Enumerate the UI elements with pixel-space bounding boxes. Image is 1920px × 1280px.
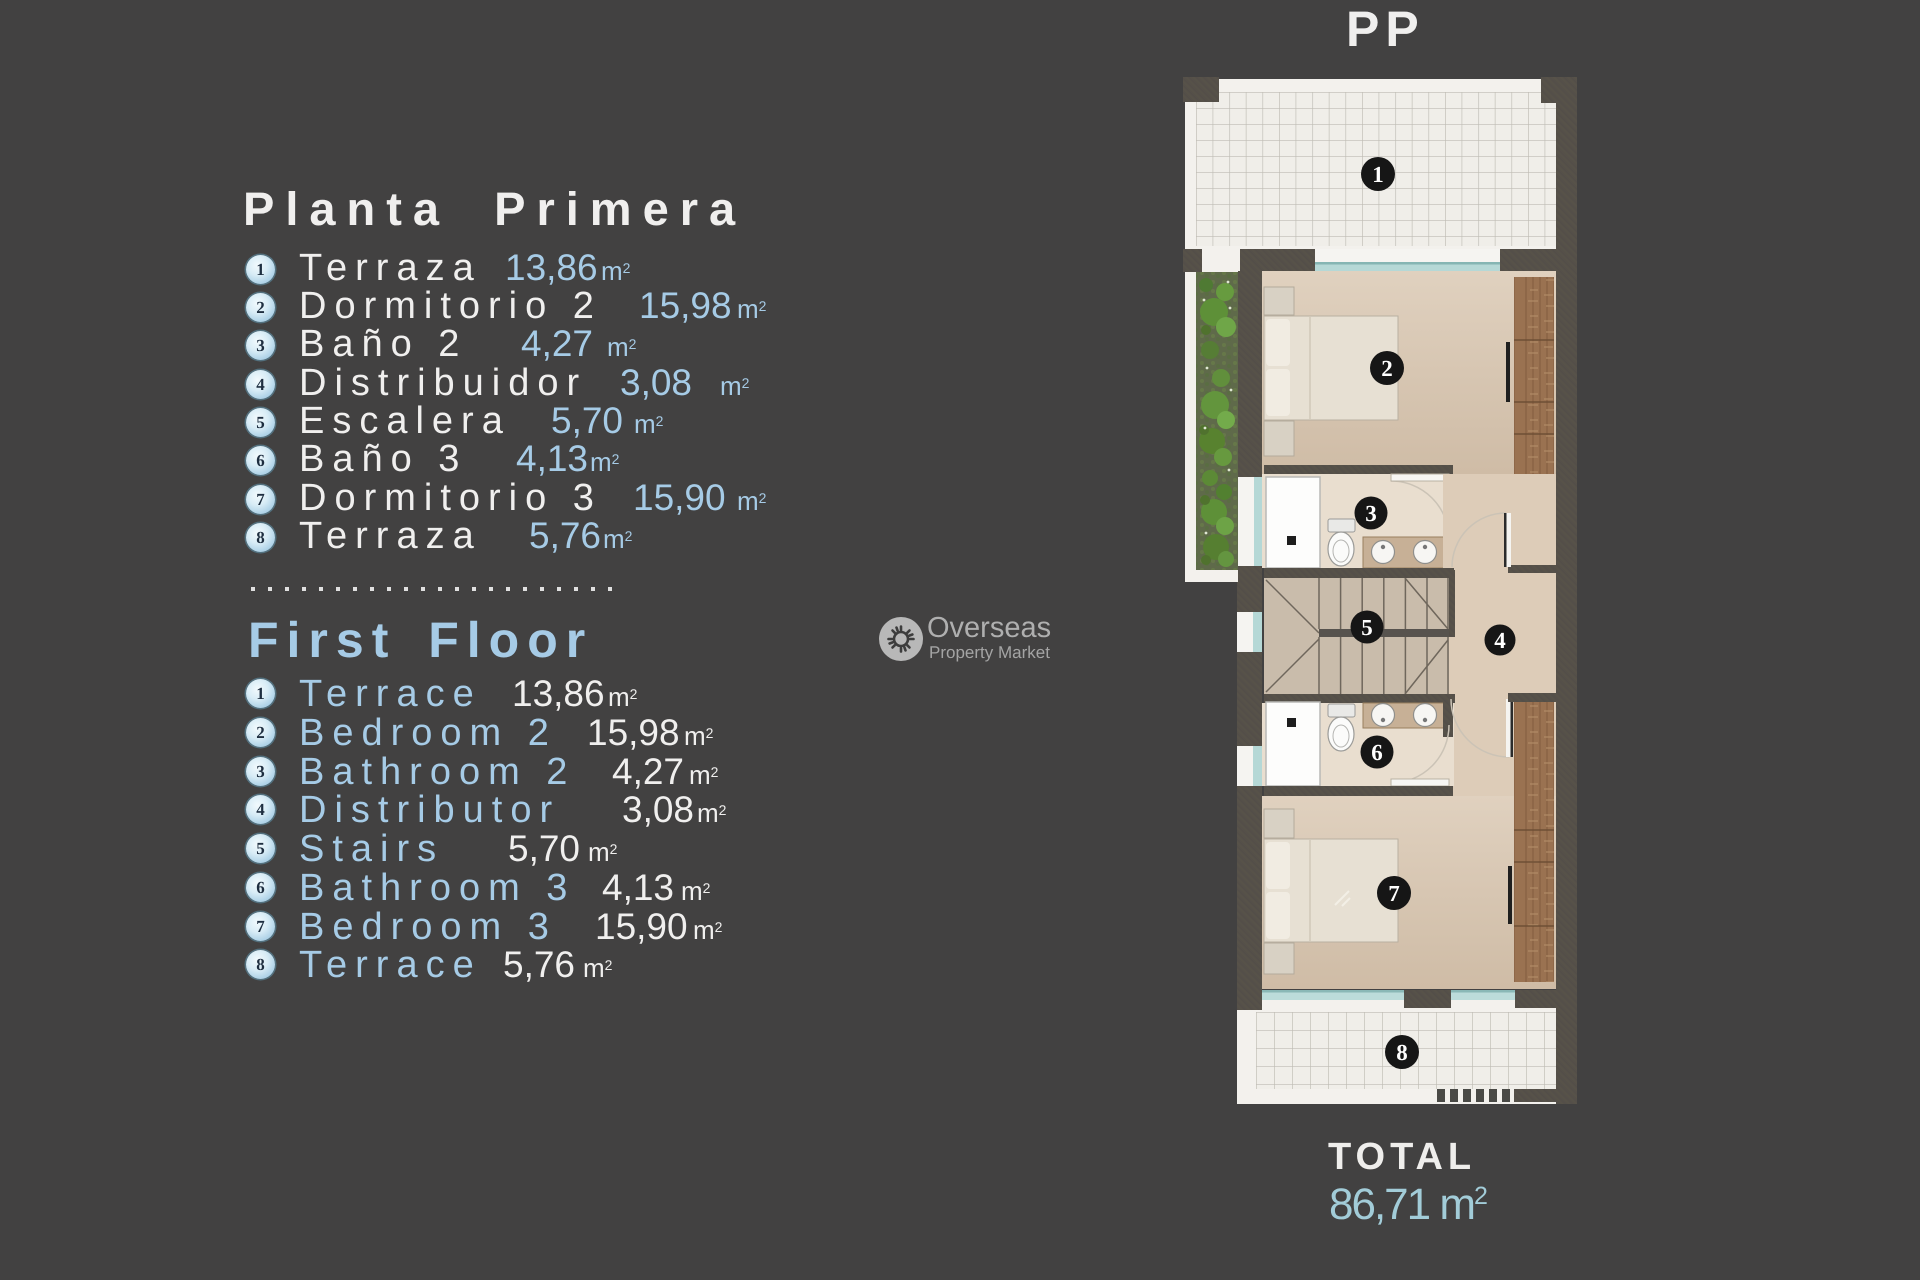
svg-text:8: 8 [1396, 1040, 1408, 1065]
svg-text:7: 7 [1388, 881, 1400, 906]
svg-text:3: 3 [1365, 501, 1377, 526]
svg-text:5: 5 [1361, 615, 1373, 640]
svg-text:6: 6 [1371, 740, 1383, 765]
svg-text:4: 4 [1494, 628, 1506, 653]
svg-text:1: 1 [1372, 162, 1384, 187]
svg-text:2: 2 [1381, 356, 1393, 381]
